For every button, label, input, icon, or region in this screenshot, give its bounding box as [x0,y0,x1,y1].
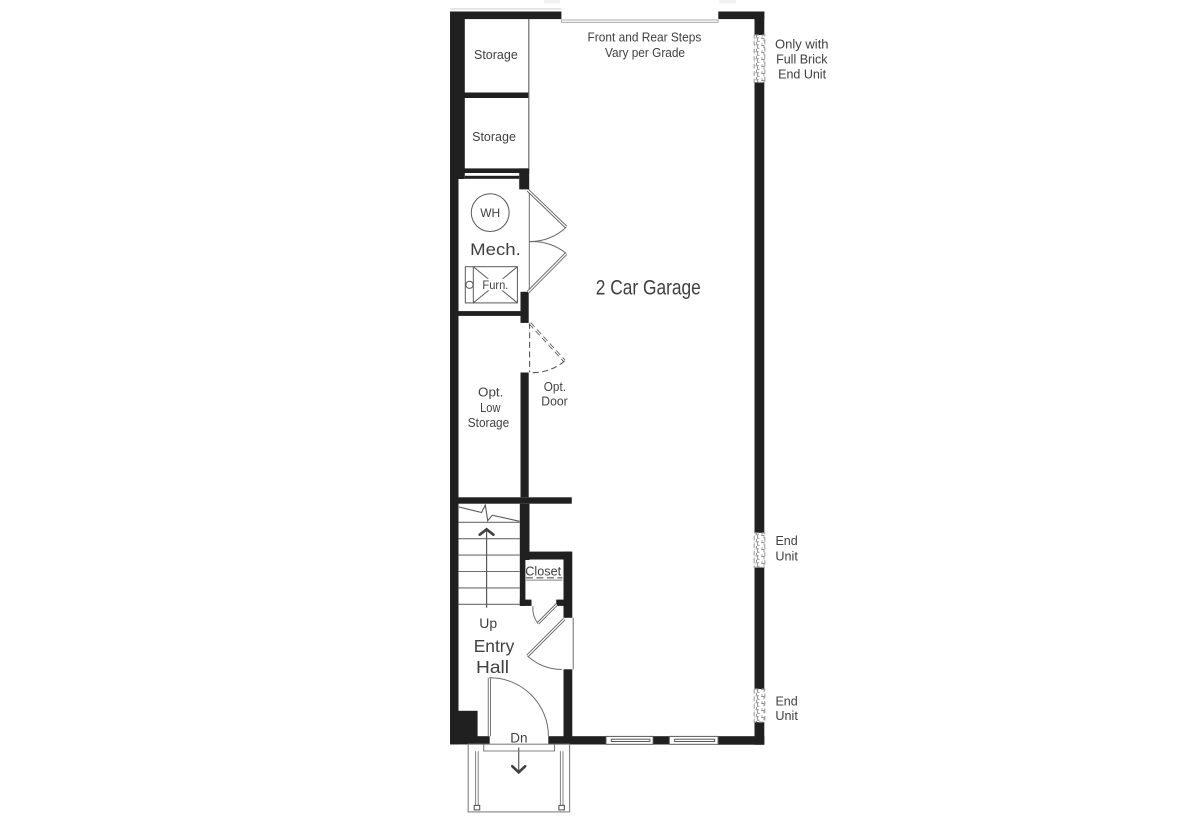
svg-text:End: End [775,694,797,708]
svg-text:Mech.: Mech. [470,240,521,259]
svg-text:Vary per Grade: Vary per Grade [605,46,685,60]
svg-text:Front and Rear Steps: Front and Rear Steps [588,31,702,45]
svg-text:Opt.: Opt. [544,380,566,394]
svg-text:Unit: Unit [775,709,798,723]
svg-text:Furn.: Furn. [482,278,508,292]
svg-text:Hall: Hall [476,657,509,677]
svg-text:End Unit: End Unit [778,67,826,81]
svg-text:WH: WH [480,206,500,220]
svg-text:Only with: Only with [775,38,829,52]
svg-text:Low: Low [480,401,501,415]
svg-text:Up: Up [479,615,497,631]
svg-text:Storage: Storage [472,130,516,144]
svg-text:End: End [775,534,797,548]
svg-text:Opt.: Opt. [478,386,503,400]
svg-text:Door: Door [541,394,567,408]
svg-text:Closet: Closet [525,564,561,578]
svg-text:Entry: Entry [474,636,515,656]
svg-text:Unit: Unit [775,549,798,563]
svg-text:Storage: Storage [468,416,509,430]
svg-text:Dn: Dn [510,730,527,745]
svg-text:Storage: Storage [474,48,518,62]
svg-text:2 Car Garage: 2 Car Garage [596,277,701,300]
svg-text:Full Brick: Full Brick [776,53,828,67]
